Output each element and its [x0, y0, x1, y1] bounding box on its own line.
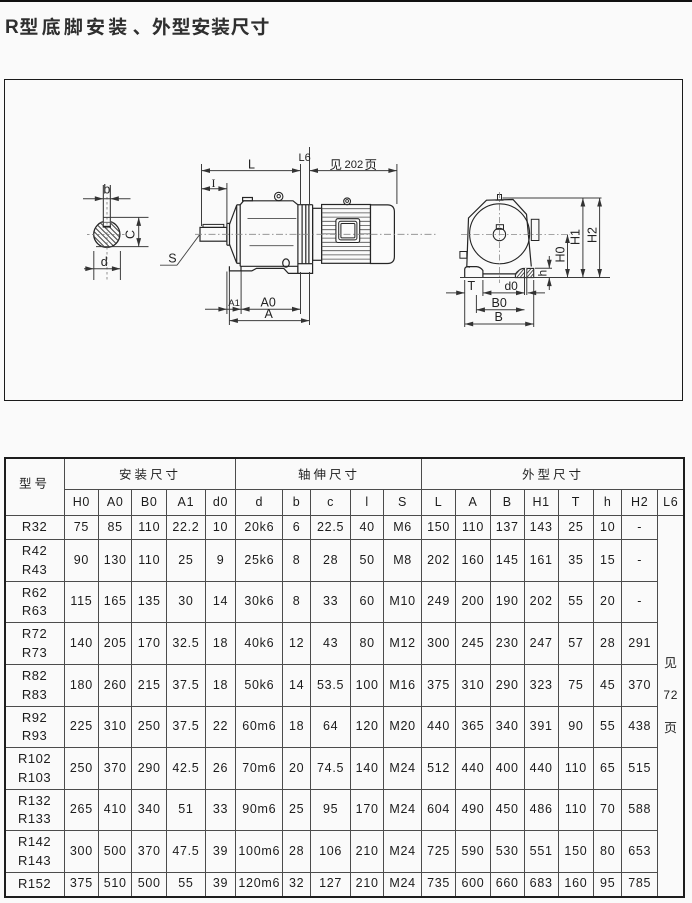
svg-text:L6: L6: [299, 152, 311, 164]
svg-text:T: T: [468, 279, 476, 293]
svg-text:I: I: [212, 176, 216, 190]
svg-text:d: d: [101, 255, 108, 269]
svg-text:C: C: [124, 230, 138, 239]
svg-text:B0: B0: [492, 296, 507, 310]
svg-text:h: h: [536, 270, 550, 277]
svg-text:d0: d0: [505, 279, 519, 293]
svg-text:L: L: [248, 157, 255, 171]
svg-text:A: A: [265, 307, 274, 321]
svg-text:b: b: [103, 183, 110, 197]
svg-text:S: S: [168, 252, 176, 266]
svg-text:202: 202: [345, 159, 364, 171]
svg-text:H2: H2: [586, 227, 600, 243]
svg-text:H1: H1: [569, 229, 583, 245]
svg-text:A1: A1: [228, 298, 240, 309]
svg-text:H0: H0: [554, 246, 568, 262]
svg-text:B: B: [495, 310, 503, 324]
